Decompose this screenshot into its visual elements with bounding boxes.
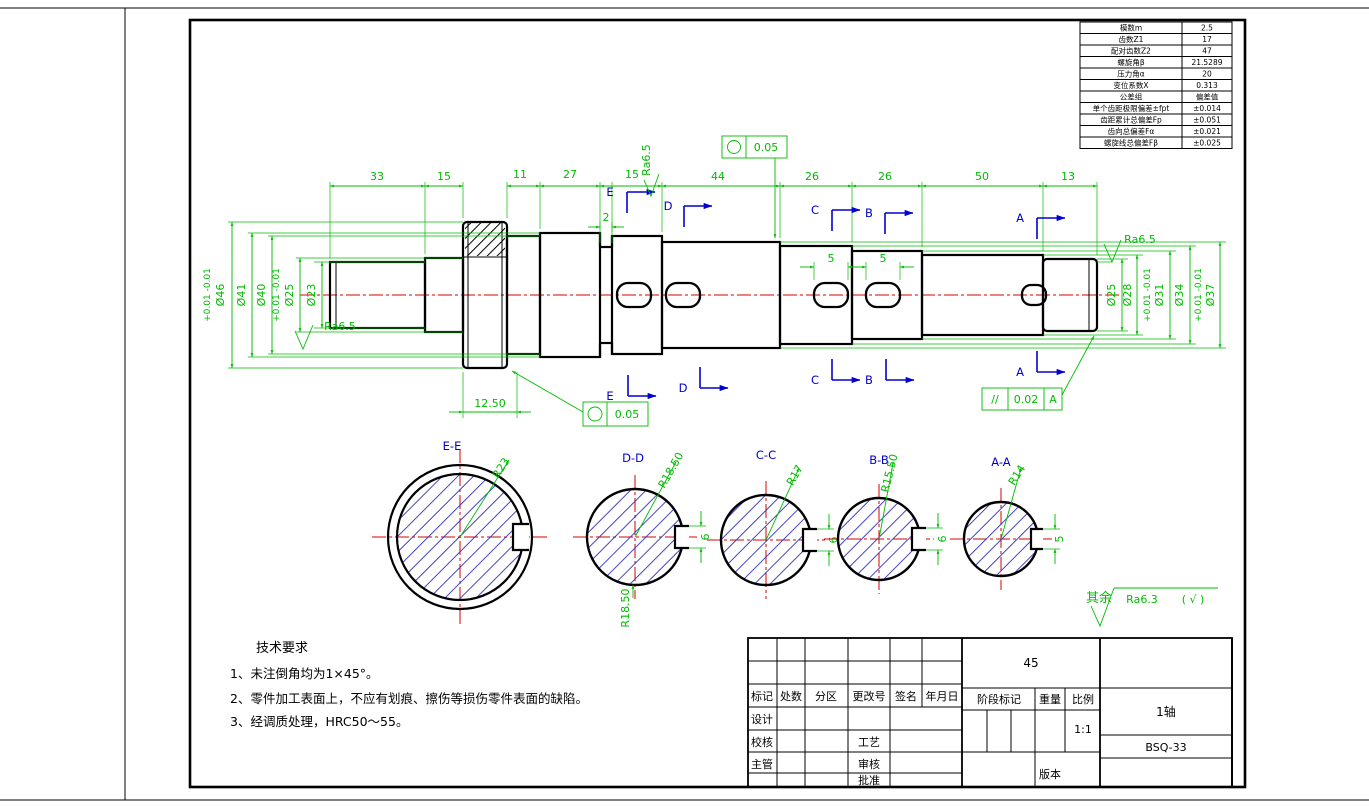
radius-e-e: R23 xyxy=(490,455,513,480)
flange-section-hatch xyxy=(465,223,505,256)
top-dimension-chain: 33 15 11 27 15 44 26 26 50 13 xyxy=(330,168,1097,258)
dim-12-50: 12.50 xyxy=(474,397,506,410)
rev-header-change-no: 更改号 xyxy=(853,689,886,703)
keyway-width-b-b: 6 xyxy=(936,536,949,543)
section-view-b-b: B-B R15.50 6 xyxy=(824,453,949,594)
role-audit: 审核 xyxy=(858,757,880,771)
rev-header-count: 处数 xyxy=(780,690,802,703)
gear-row-value: ±0.014 xyxy=(1193,104,1221,113)
gear-row-value: ±0.021 xyxy=(1193,127,1221,136)
groove-dim: 2 xyxy=(588,211,624,243)
dia-28: Ø28 xyxy=(1121,284,1134,307)
marker-b-top: B xyxy=(865,206,873,220)
gear-row-label: 齿向总偏差Fα xyxy=(1108,126,1155,136)
dia-31: Ø31 xyxy=(1153,284,1166,307)
section-view-c-c: C-C R17 6 xyxy=(707,448,840,599)
gear-row-value: ±0.051 xyxy=(1193,116,1221,125)
section-label-a-a: A-A xyxy=(991,455,1011,469)
parallelism-icon: // xyxy=(991,393,999,406)
marker-a-bottom: A xyxy=(1016,365,1024,379)
gear-row-label: 配对齿数Z2 xyxy=(1111,46,1151,56)
section-label-c-c: C-C xyxy=(756,448,776,462)
version-label: 版本 xyxy=(1039,767,1061,781)
gear-row-value: 2.5 xyxy=(1201,24,1213,33)
section-view-e-e: E-E R23 xyxy=(372,439,548,627)
radius-d-d-2: R18.50 xyxy=(619,588,632,627)
gear-row-label: 变位系数X xyxy=(1113,80,1148,90)
stage-mark-label: 阶段标记 xyxy=(977,692,1021,706)
ra-left: Ra6.5 xyxy=(324,320,356,333)
circularity-top-value: 0.05 xyxy=(754,141,779,154)
circularity-frame-top: 0.05 xyxy=(722,136,787,238)
dim-26b: 26 xyxy=(878,170,892,183)
gear-row-value: 20 xyxy=(1202,70,1212,79)
rest-surface-finish: 其余 Ra6.3 ( √ ) xyxy=(1086,588,1218,626)
parallelism-datum: A xyxy=(1049,393,1057,406)
marker-a-top: A xyxy=(1016,211,1024,225)
keyway-width-d-d: 6 xyxy=(699,534,712,541)
marker-d-top: D xyxy=(664,199,673,213)
weight-label: 重量 xyxy=(1039,692,1061,706)
gear-row-value: 21.5289 xyxy=(1191,58,1222,67)
title-block: 标记 处数 分区 更改号 签名 年月日 设计 校核 主管 工艺 审核 批准 45… xyxy=(748,638,1232,787)
gear-row-value: 17 xyxy=(1202,35,1212,44)
circularity-icon xyxy=(588,407,602,421)
dim-15a: 15 xyxy=(437,170,451,183)
technical-requirements: 技术要求 1、未注倒角均为1×45°。 2、零件加工表面上，不应有划痕、擦伤等损… xyxy=(230,641,588,729)
gear-row-value: ±0.025 xyxy=(1193,139,1221,148)
gear-table-rows: 模数m2.5 齿数Z117 配对齿数Z247 螺旋角β21.5289 压力角α2… xyxy=(1093,23,1223,148)
gear-row-value: 0.313 xyxy=(1196,81,1218,90)
keyway-length-dims: 5 5 xyxy=(800,252,914,280)
sheet-frame xyxy=(0,8,1369,800)
dim-13: 13 xyxy=(1061,170,1075,183)
ra-mid: Ra6.5 xyxy=(640,144,653,176)
dia-31-tol: +0.01 -0.01 xyxy=(1143,268,1153,322)
section-label-d-d: D-D xyxy=(622,451,644,465)
surface-finish-left: Ra6.5 xyxy=(295,320,356,349)
tech-req-item-1: 1、未注倒角均为1×45°。 xyxy=(230,666,379,681)
role-check: 校核 xyxy=(751,735,773,749)
gear-row-label: 齿数Z1 xyxy=(1119,34,1144,44)
revision-table xyxy=(748,638,962,787)
dia-37: Ø37 xyxy=(1204,284,1217,307)
rest-value: Ra6.3 xyxy=(1126,593,1158,606)
rev-header-mark: 标记 xyxy=(751,689,773,703)
marker-e-top: E xyxy=(606,185,613,199)
dim-33: 33 xyxy=(370,170,384,183)
dim-key-b: 5 xyxy=(880,252,887,265)
gear-row-value: 47 xyxy=(1202,47,1212,56)
scale-label: 比例 xyxy=(1072,692,1094,706)
gear-parameter-table: 模数m2.5 齿数Z117 配对齿数Z247 螺旋角β21.5289 压力角α2… xyxy=(1080,22,1232,149)
section-views: E-E R23 D-D R18.50 R18.50 6 C xyxy=(372,439,1066,628)
dim-27: 27 xyxy=(563,168,577,181)
gear-row-label: 压力角α xyxy=(1117,69,1144,79)
keyway-width-a-a: 5 xyxy=(1053,536,1066,543)
marker-d-bottom: D xyxy=(679,381,688,395)
tech-req-item-2: 2、零件加工表面上，不应有划痕、擦伤等损伤零件表面的缺陷。 xyxy=(230,691,588,706)
scale-value: 1:1 xyxy=(1074,723,1092,736)
marker-e-bottom: E xyxy=(606,389,613,403)
dim-11: 11 xyxy=(513,168,527,181)
dia-34: Ø34 xyxy=(1173,284,1186,307)
main-shaft-view: 33 15 11 27 15 44 26 26 50 13 2 5 xyxy=(203,136,1226,426)
dim-26a: 26 xyxy=(805,170,819,183)
dia-25-left: Ø25 xyxy=(283,284,296,307)
circularity-icon xyxy=(728,141,741,154)
role-craft: 工艺 xyxy=(858,736,880,749)
gear-row-value: 偏差值 xyxy=(1196,92,1219,102)
marker-c-bottom: C xyxy=(811,373,819,387)
rev-header-date: 年月日 xyxy=(926,689,959,703)
dia-40: Ø40 xyxy=(255,284,268,307)
gear-row-label: 齿距累计总偏差Fp xyxy=(1100,115,1162,125)
dim-15b: 15 xyxy=(625,168,639,181)
dia-23: Ø23 xyxy=(305,284,318,307)
radius-c-c: R17 xyxy=(784,463,806,488)
dia-25-left-tol: +0.01 -0.01 xyxy=(272,268,282,322)
rest-check-icon: ( √ ) xyxy=(1182,593,1205,606)
gear-row-label: 螺旋线总偏差Fβ xyxy=(1104,138,1158,148)
dim-50: 50 xyxy=(975,170,989,183)
drawing-number: BSQ-33 xyxy=(1145,741,1186,754)
tech-req-title: 技术要求 xyxy=(256,641,308,656)
part-name: 1轴 xyxy=(1156,704,1176,719)
circularity-mid-value: 0.05 xyxy=(615,408,640,421)
gear-row-label: 公差组 xyxy=(1120,92,1143,102)
gear-row-label: 螺旋角β xyxy=(1117,57,1144,67)
section-view-a-a: A-A R14 5 xyxy=(950,455,1066,590)
surface-finish-top-mid: Ra6.5 xyxy=(640,144,659,196)
surface-finish-top-right: Ra6.5 xyxy=(1097,233,1156,262)
rev-header-zone: 分区 xyxy=(815,690,837,703)
dim-groove-2: 2 xyxy=(603,211,610,224)
parallelism-value: 0.02 xyxy=(1014,393,1039,406)
marker-c-top: C xyxy=(811,203,819,217)
section-label-e-e: E-E xyxy=(443,439,462,453)
dia-37-tol: +0.01 -0.01 xyxy=(1194,268,1204,322)
gear-row-label: 模数m xyxy=(1120,23,1142,33)
gear-row-label: 单个齿距极限偏差±fpt xyxy=(1093,103,1170,113)
role-chief: 主管 xyxy=(751,757,773,771)
role-approve: 批准 xyxy=(858,773,880,787)
radius-d-d: R18.50 xyxy=(656,450,687,490)
marker-b-bottom: B xyxy=(865,373,873,387)
ra-right: Ra6.5 xyxy=(1124,233,1156,246)
flange-width-dim: 12.50 xyxy=(449,372,531,418)
material-label: 45 xyxy=(1023,656,1038,670)
section-markers: E D C B A E D C B A xyxy=(606,185,1065,403)
dia-25-right: Ø25 xyxy=(1105,284,1118,307)
parallelism-frame: // 0.02 A xyxy=(982,336,1094,410)
section-view-d-d: D-D R18.50 R18.50 6 xyxy=(573,450,712,628)
role-design: 设计 xyxy=(751,713,773,726)
cad-shaft-drawing: 模数m2.5 齿数Z117 配对齿数Z247 螺旋角β21.5289 压力角α2… xyxy=(0,0,1369,809)
rev-header-signature: 签名 xyxy=(895,689,917,703)
dim-44: 44 xyxy=(711,170,725,183)
dia-46-tol: +0.01 -0.01 xyxy=(203,268,213,322)
dia-41: Ø41 xyxy=(235,284,248,307)
dim-key-c: 5 xyxy=(828,252,835,265)
dia-46: Ø46 xyxy=(214,284,227,307)
tech-req-item-3: 3、经调质处理，HRC50～55。 xyxy=(230,714,408,729)
